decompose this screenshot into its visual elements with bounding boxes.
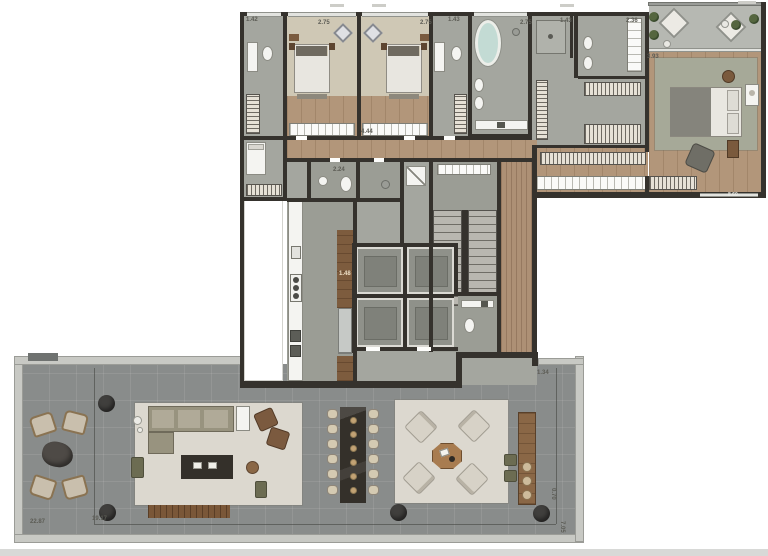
dimension-label: 4.44 — [361, 129, 373, 135]
dimension-label: 1.43 — [448, 17, 460, 23]
dimension-label: 2.75 — [420, 20, 432, 26]
dimension-label: 3.93 — [647, 54, 659, 60]
dimension-label: 2.75 — [520, 20, 532, 26]
dimension-tick — [738, 1, 756, 4]
dimension-label: 1.43 — [560, 18, 572, 24]
dimension-label: 2.36 — [626, 18, 638, 24]
page-edge-shadow — [0, 549, 768, 556]
dimension-label: 19.17 — [92, 516, 107, 522]
dimension-label: 1.42 — [246, 17, 258, 23]
dimension-label: 1.34 — [537, 370, 549, 376]
dimension-label: 7.05 — [559, 521, 565, 533]
dimension-tick — [330, 4, 344, 7]
dimension-labels: 1.42 2.75 2.75 1.43 2.75 1.43 2.36 3.93 … — [0, 0, 768, 556]
dimension-label: 8.60 — [728, 193, 738, 198]
dimension-label: 22.87 — [30, 519, 45, 525]
dimension-label: 0.70 — [550, 488, 556, 500]
dimension-tick — [560, 4, 574, 7]
dimension-label: 2.24 — [333, 167, 345, 173]
floor-plan-canvas: 1.42 2.75 2.75 1.43 2.75 1.43 2.36 3.93 … — [0, 0, 768, 556]
dimension-tick — [372, 4, 386, 7]
dimension-label: 2.75 — [318, 20, 330, 26]
dimension-label: 1.48 — [339, 271, 351, 277]
